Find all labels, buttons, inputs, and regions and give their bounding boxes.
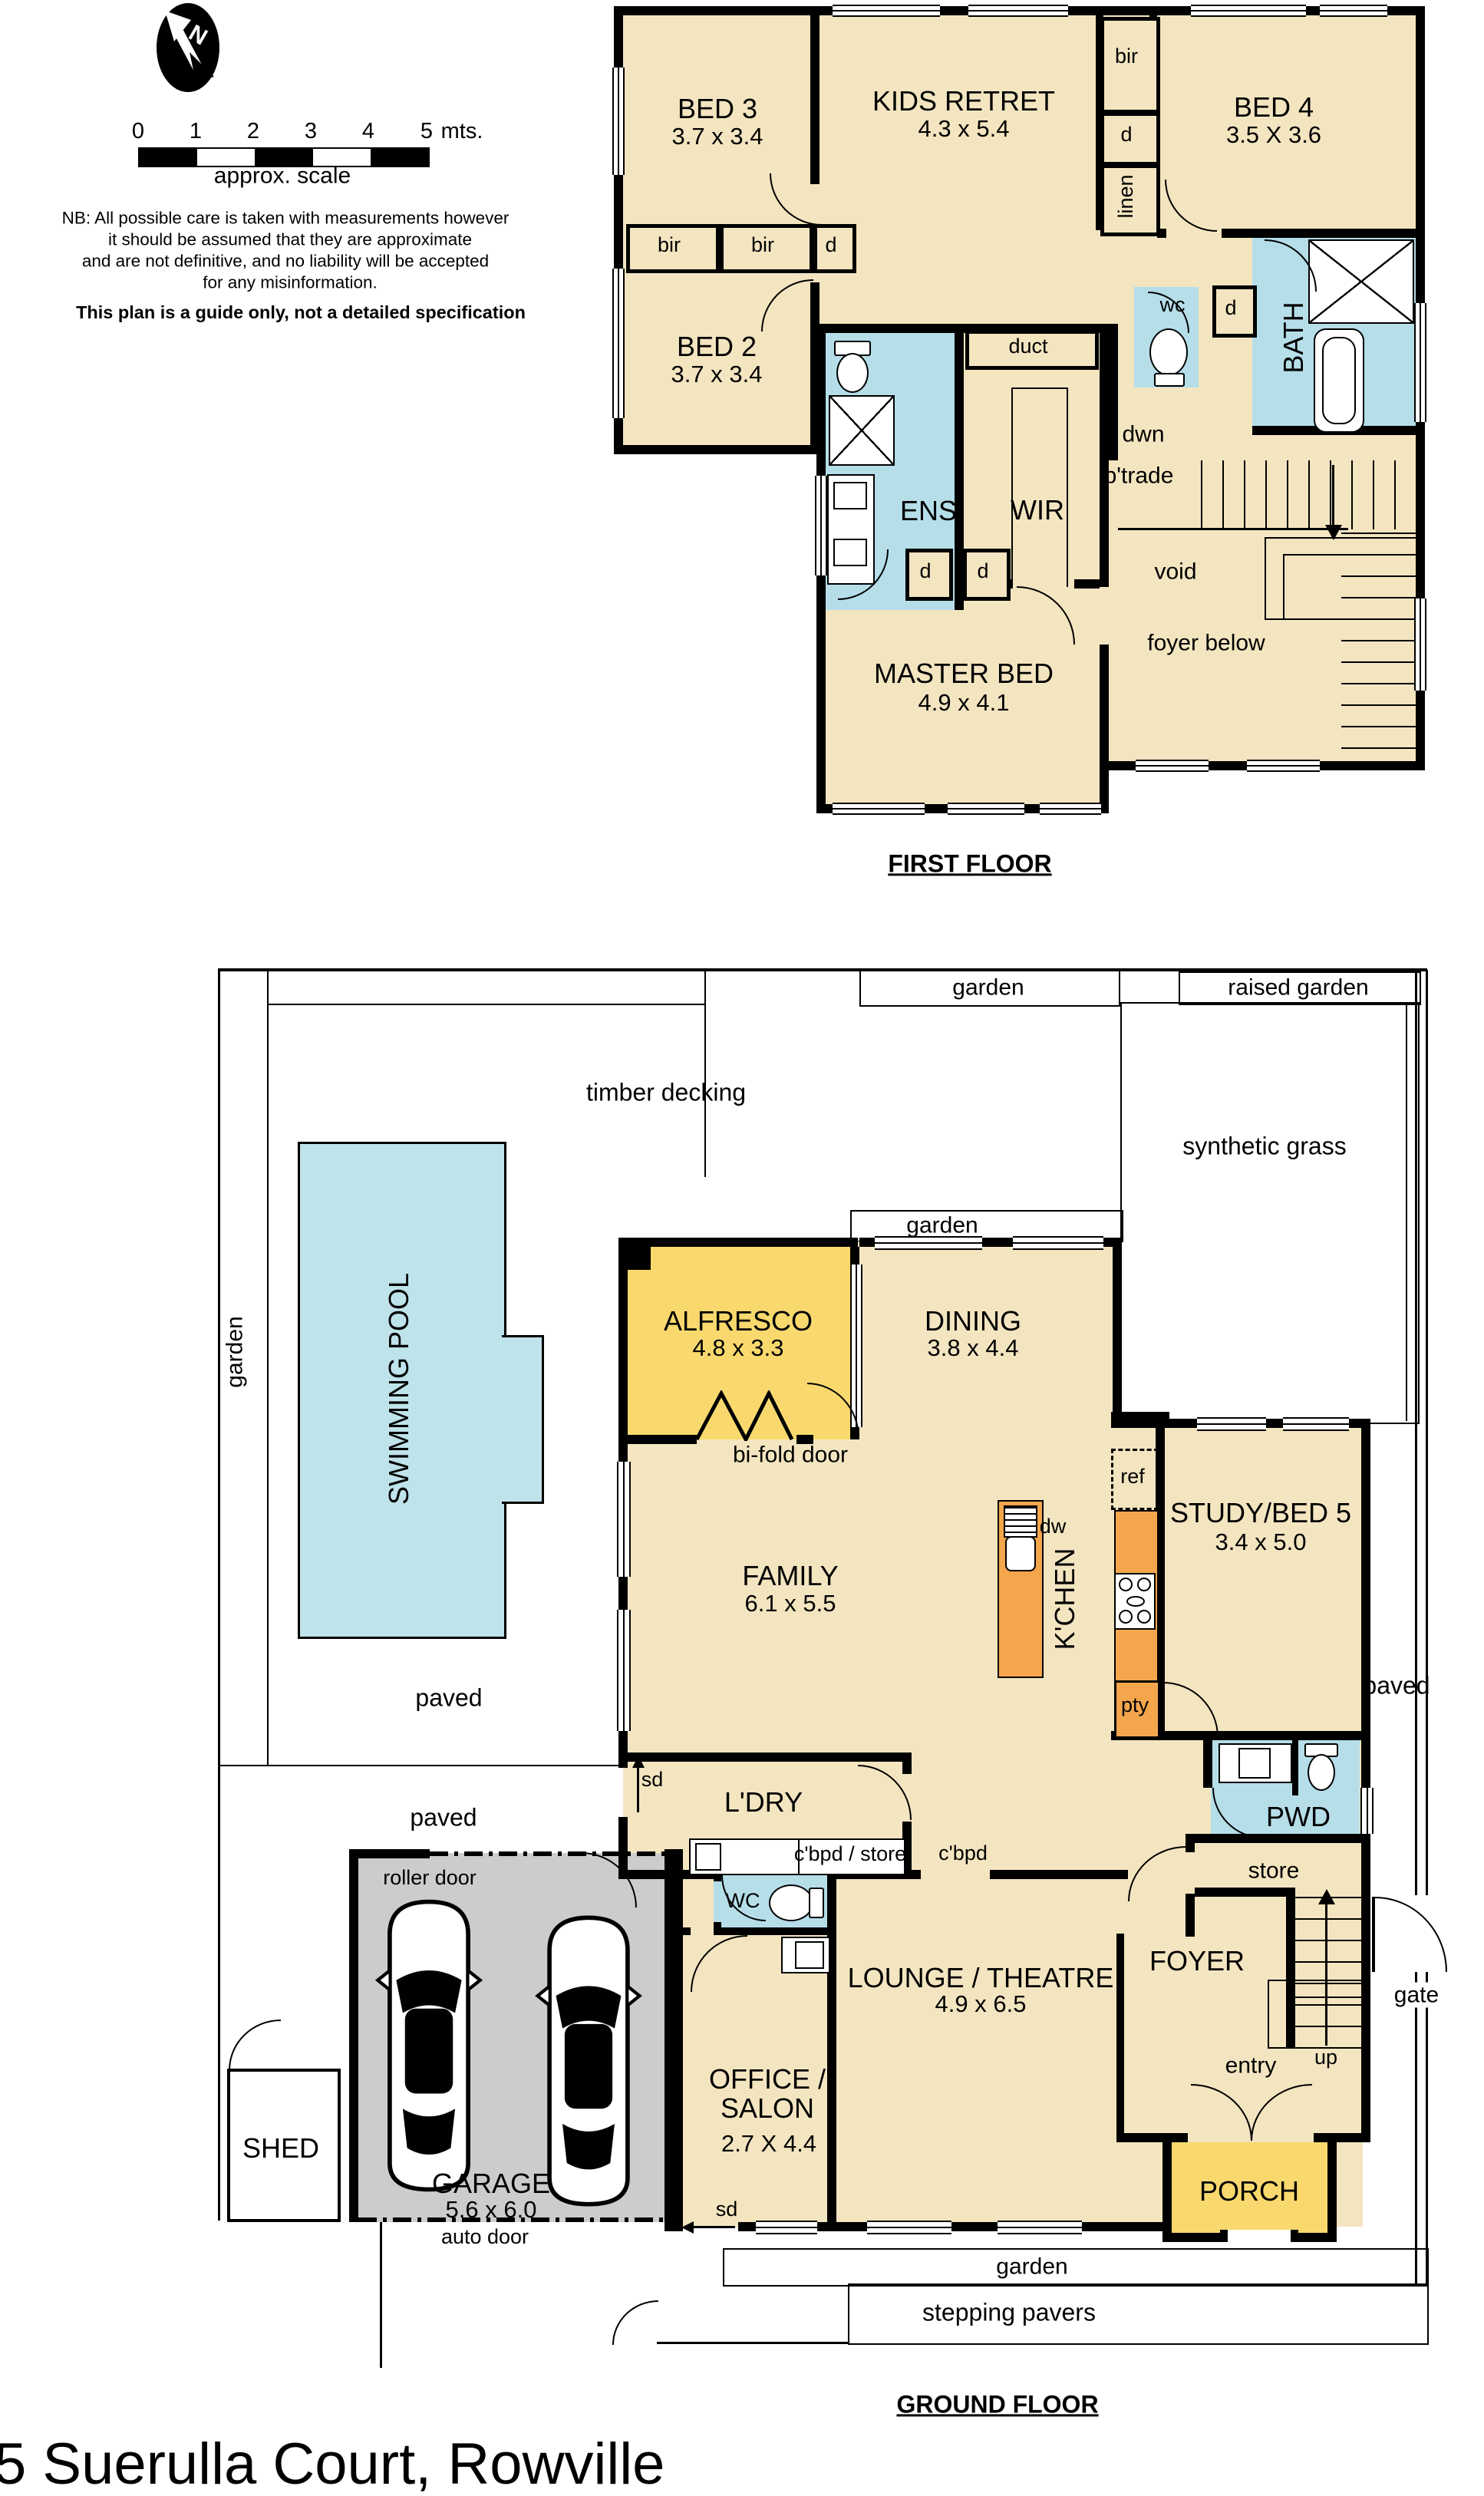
window	[617, 1610, 631, 1731]
fence	[380, 2222, 382, 2368]
gf-study-dims: 3.4 x 5.0	[1215, 1529, 1307, 1555]
wall	[1116, 1934, 1124, 2142]
burner-icon	[1137, 1610, 1151, 1624]
window	[1013, 1236, 1103, 1250]
wall	[746, 1927, 827, 1935]
stairs-down	[1201, 460, 1416, 529]
window	[756, 2221, 817, 2234]
boundary	[218, 968, 220, 2221]
raised-garden-label: raised garden	[1228, 975, 1368, 1001]
gf-dining-dims: 3.8 x 4.4	[928, 1335, 1019, 1361]
ff-bed2-label: BED 2	[677, 331, 757, 362]
gate-arc	[612, 2300, 658, 2345]
fence	[657, 2342, 849, 2344]
wall	[827, 1870, 836, 2227]
gf-study-label: STUDY/BED 5	[1170, 1498, 1351, 1528]
toilet-icon	[809, 1888, 824, 1918]
wall	[1162, 2142, 1172, 2242]
wall	[1186, 1843, 1195, 1852]
gf-up-label: up	[1314, 2046, 1337, 2069]
scale-tick: 3	[305, 120, 317, 144]
window	[1414, 303, 1426, 422]
gf-lounge-dims: 4.9 x 6.5	[935, 1991, 1027, 2017]
window	[1360, 1788, 1374, 1834]
wall	[1111, 1412, 1169, 1428]
trough-icon	[695, 1843, 721, 1871]
gf-sd-label: sd	[641, 1769, 664, 1792]
gf-auto-label: auto door	[441, 2226, 529, 2249]
wall	[1074, 579, 1100, 589]
gf-lounge-label: LOUNGE / THEATRE	[848, 1963, 1114, 1993]
wall	[1327, 2142, 1337, 2242]
stair-arrow-head	[1325, 525, 1342, 540]
gf-cbpd-store-label: c'bpd / store	[794, 1843, 906, 1866]
wall	[349, 2213, 358, 2222]
window	[612, 269, 625, 418]
gf-pwd-label: PWD	[1266, 1802, 1331, 1832]
bathtub-icon	[1314, 328, 1364, 433]
sink-drainer	[1004, 1505, 1037, 1538]
garden-label: garden	[996, 2254, 1067, 2280]
gf-garage-label: GARAGE	[432, 2168, 550, 2199]
wall	[1113, 1238, 1122, 1416]
gate-arc	[1375, 1897, 1447, 1972]
garden-label: garden	[952, 975, 1024, 1001]
gf-gate-label: gate	[1391, 1983, 1442, 2008]
wall	[1100, 324, 1109, 587]
ff-bed3-label: BED 3	[678, 94, 757, 124]
sd-arrow-head	[632, 1756, 645, 1768]
shower-icon	[829, 395, 895, 466]
wall	[1186, 1834, 1370, 1843]
boundary	[219, 1765, 623, 1766]
paved-label: paved	[410, 1804, 477, 1831]
ff-d-label: d	[919, 560, 931, 583]
ff-wir-label: WIR	[1011, 495, 1064, 526]
toilet-icon	[769, 1884, 813, 1921]
swimming-pool-step	[502, 1335, 544, 1504]
basin-icon	[1238, 1748, 1271, 1779]
wall	[1122, 2133, 1188, 2142]
wall	[990, 1870, 1128, 1879]
ff-d-label: d	[1120, 124, 1132, 147]
gf-kitchen-label: K'CHEN	[1050, 1548, 1080, 1650]
window	[833, 5, 940, 17]
wall	[1100, 645, 1109, 804]
gf-cbpd-label: c'bpd	[938, 1842, 988, 1865]
ff-btrade-label: b'trade	[1104, 463, 1174, 489]
window	[1283, 1417, 1349, 1431]
gf-roller-label: roller door	[383, 1867, 477, 1890]
disclaimer-line: NB: All possible care is taken with meas…	[62, 209, 510, 229]
boundary	[267, 970, 269, 1766]
window	[612, 68, 625, 175]
ff-foyer-below-label: foyer below	[1147, 631, 1265, 656]
synthetic-grass-area	[1120, 1002, 1420, 1424]
wardrobe-rail	[1011, 387, 1068, 587]
gf-family-label: FAMILY	[742, 1561, 838, 1591]
disclaimer-line: for any misinformation.	[203, 274, 378, 293]
window	[833, 803, 925, 815]
burner-icon	[1119, 1578, 1133, 1591]
car-icon	[374, 1892, 483, 2199]
fence	[1426, 970, 1428, 2283]
ff-ens-label: ENS	[900, 496, 957, 526]
wall	[1195, 1888, 1287, 1897]
gf-bifold-label: bi-fold door	[733, 1443, 848, 1468]
gf-dining-label: DINING	[925, 1306, 1021, 1337]
window	[875, 1236, 982, 1250]
ff-bed4-label: BED 4	[1234, 92, 1314, 123]
gf-dw-label: dw	[1040, 1515, 1067, 1538]
gf-ref-label: ref	[1120, 1466, 1145, 1489]
gf-store-label: store	[1248, 1858, 1300, 1884]
wall	[902, 1762, 912, 1774]
roller-door-line	[430, 1851, 665, 1856]
wall	[618, 1238, 628, 1444]
window	[617, 1462, 631, 1577]
ff-bed4-dims: 3.5 X 3.6	[1226, 122, 1321, 148]
garden-label: garden	[223, 1316, 248, 1387]
window	[1191, 5, 1306, 17]
burner-icon	[1119, 1610, 1133, 1624]
ff-kids-retreat-label: KIDS RETRET	[872, 86, 1055, 117]
floor-plan: N 0 1 2 3 4 5 mts. approx. scale NB: All…	[0, 0, 1484, 2496]
ff-bath-label: BATH	[1278, 302, 1309, 373]
gf-foyer-label: FOYER	[1149, 1946, 1245, 1977]
toilet-icon	[836, 353, 869, 393]
wall	[810, 11, 819, 184]
basin-icon	[833, 482, 867, 509]
window	[1320, 5, 1387, 17]
stair-landing	[1283, 554, 1419, 620]
stair-arrow-head	[1318, 1889, 1335, 1904]
wall	[618, 1435, 697, 1444]
gf-ldry-label: L'DRY	[724, 1787, 803, 1818]
fence	[1406, 1002, 1407, 1421]
toilet-icon	[1149, 328, 1188, 376]
window	[1197, 1417, 1266, 1431]
timber-decking-label: timber decking	[586, 1079, 746, 1106]
gf-family-dims: 6.1 x 5.5	[745, 1591, 836, 1617]
burner-icon	[1126, 1596, 1145, 1607]
scale-tick: 4	[362, 120, 374, 144]
garden-label: garden	[906, 1213, 978, 1238]
wall	[1203, 1740, 1212, 1788]
wall	[1314, 2133, 1370, 2142]
ff-void-label: void	[1154, 559, 1196, 585]
bifold-door-icon	[695, 1390, 798, 1441]
toilet-icon	[1308, 1754, 1335, 1791]
wall	[614, 445, 819, 454]
deck-edge	[704, 970, 706, 1177]
deck-edge	[267, 1004, 706, 1005]
window	[1040, 803, 1101, 815]
window	[1414, 598, 1426, 691]
gf-wc-label: WC	[726, 1890, 760, 1913]
ff-d-label: d	[825, 234, 836, 257]
window	[998, 2221, 1082, 2234]
wall	[665, 1849, 683, 2231]
scale-tick: 2	[247, 120, 259, 144]
disclaimer-line: and are not definitive, and no liability…	[82, 252, 489, 272]
paved-label: paved	[1363, 1672, 1430, 1699]
sd-arrow	[637, 1766, 639, 1812]
garden-bed	[723, 2248, 1429, 2287]
window	[867, 2221, 951, 2234]
scale-unit: mts.	[441, 120, 483, 144]
wall	[1186, 1894, 1195, 1937]
gf-alfresco-label: ALFRESCO	[664, 1306, 813, 1337]
ff-kids-retreat-dims: 4.3 x 5.4	[918, 116, 1010, 142]
basin-icon	[795, 1941, 824, 1969]
gf-sd-label: sd	[716, 2198, 738, 2221]
scale-tick: 5	[420, 120, 433, 144]
ff-d-label: d	[977, 560, 988, 583]
stair-arrow	[1325, 1904, 1327, 2046]
ff-title: FIRST FLOOR	[888, 850, 1051, 877]
gf-garage-dims: 5.6 x 6.0	[446, 2197, 537, 2223]
gf-shed-label: SHED	[242, 2133, 319, 2164]
ff-bir-label: bir	[658, 234, 681, 257]
scale-caption: approx. scale	[214, 163, 351, 189]
wall	[618, 1238, 858, 1247]
gf-alfresco-dims: 4.8 x 3.3	[693, 1335, 784, 1361]
ff-master-label: MASTER BED	[874, 658, 1054, 689]
north-icon	[156, 2, 220, 94]
ff-bed3-dims: 3.7 x 3.4	[672, 124, 763, 150]
sd-arrow	[692, 2226, 735, 2228]
ff-d-label: d	[1225, 297, 1236, 320]
wall	[1109, 324, 1118, 460]
window	[850, 1264, 862, 1427]
toilet-icon	[1154, 373, 1185, 387]
porch-step	[1220, 2230, 1298, 2242]
wall	[349, 1849, 430, 1858]
stepping-pavers-label: stepping pavers	[922, 2299, 1096, 2326]
window	[948, 803, 1024, 815]
ff-dwn-label: dwn	[1122, 422, 1164, 447]
wall	[349, 1849, 358, 2222]
ff-bed2-dims: 3.7 x 3.4	[671, 361, 763, 387]
burner-icon	[1137, 1578, 1151, 1591]
ff-duct-label: duct	[1008, 335, 1047, 358]
wall	[683, 1927, 691, 1935]
synthetic-grass-label: synthetic grass	[1182, 1133, 1346, 1159]
wall	[1222, 229, 1425, 238]
paved-label: paved	[415, 1684, 482, 1711]
sink-icon	[1005, 1536, 1036, 1571]
wall	[1292, 1740, 1298, 1795]
window	[968, 5, 1068, 17]
window	[1136, 760, 1209, 772]
sd-arrow-head	[681, 2221, 694, 2234]
wall	[618, 1752, 912, 1762]
ff-bir-label: bir	[1115, 45, 1138, 68]
gf-porch-label: PORCH	[1199, 2176, 1299, 2207]
window	[815, 476, 827, 575]
shed-door-arc	[229, 2020, 281, 2070]
ff-master-dims: 4.9 x 4.1	[918, 690, 1010, 716]
stair-arrow	[1332, 465, 1334, 526]
shower-icon	[1308, 239, 1414, 324]
guide-note: This plan is a guide only, not a detaile…	[76, 303, 526, 323]
gf-title: GROUND FLOOR	[896, 2391, 1098, 2418]
gf-office-dims: 2.7 X 4.4	[721, 2131, 816, 2157]
gf-entry-label: entry	[1225, 2053, 1277, 2079]
swimming-pool-label: SWIMMING POOL	[384, 1273, 414, 1505]
gf-pty-label: pty	[1121, 1694, 1149, 1717]
window	[1247, 760, 1320, 772]
ff-bir-label: bir	[751, 234, 774, 257]
ff-wc-label: wc	[1160, 294, 1186, 317]
gf-office-label1: OFFICE /	[709, 2064, 826, 2095]
gf-kitchen-nook	[1111, 1428, 1160, 1451]
ff-linen-label: linen	[1115, 174, 1138, 218]
scale-tick: 1	[190, 120, 202, 144]
address: 5 Suerulla Court, Rowville	[0, 2431, 665, 2496]
disclaimer-line: it should be assumed that they are appro…	[108, 231, 472, 250]
scale-tick: 0	[132, 120, 144, 144]
gf-office-label2: SALON	[721, 2093, 814, 2124]
